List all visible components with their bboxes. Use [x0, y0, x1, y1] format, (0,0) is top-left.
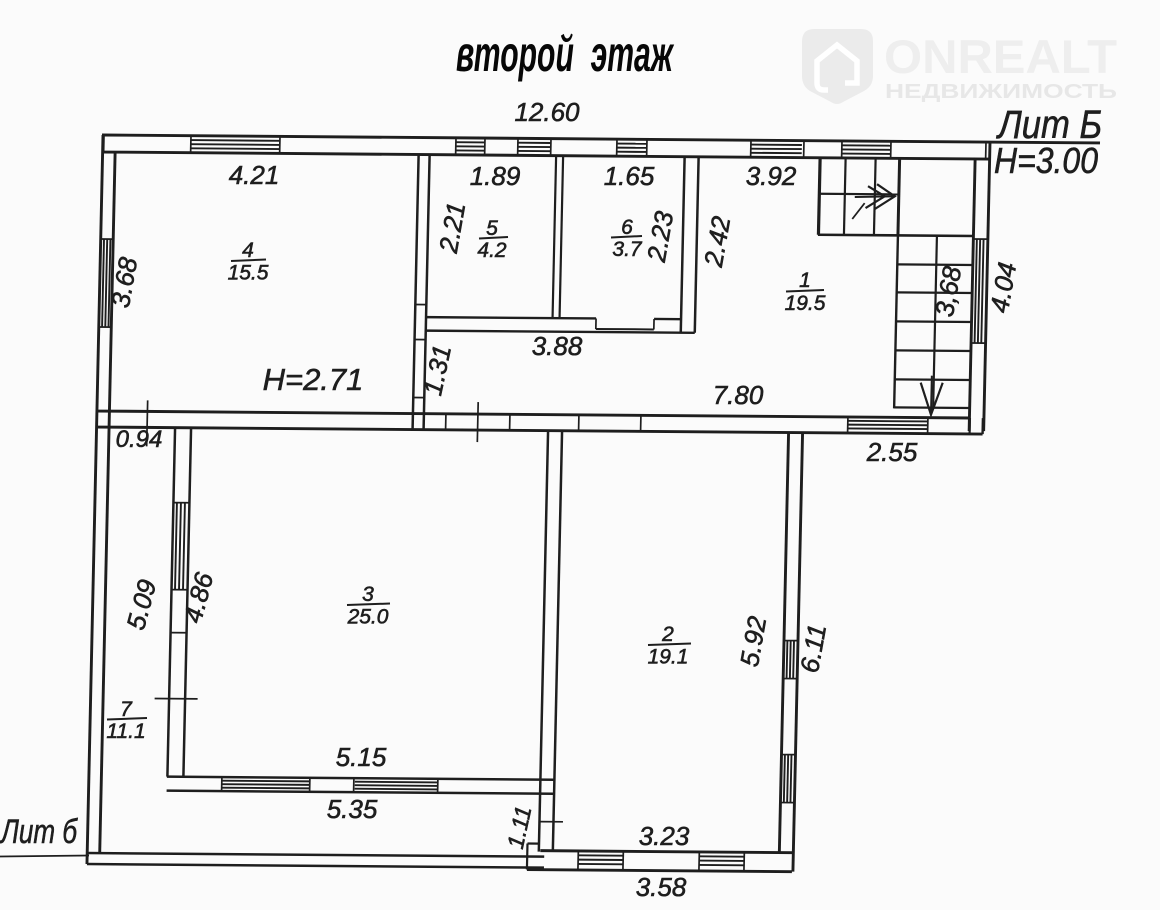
svg-text:второй этаж: второй этаж — [456, 26, 674, 82]
svg-text:3.88: 3.88 — [532, 331, 583, 361]
svg-text:3.7: 3.7 — [612, 238, 643, 261]
svg-text:3.23: 3.23 — [639, 821, 690, 851]
svg-text:5.35: 5.35 — [327, 794, 378, 824]
svg-text:25.0: 25.0 — [347, 606, 389, 629]
svg-text:7: 7 — [120, 698, 133, 721]
svg-text:H=2.71: H=2.71 — [263, 362, 364, 397]
svg-text:15.5: 15.5 — [228, 262, 269, 285]
svg-text:3.58: 3.58 — [636, 872, 687, 902]
svg-text:7.80: 7.80 — [713, 380, 764, 410]
svg-text:19.5: 19.5 — [785, 292, 826, 315]
svg-text:4.2: 4.2 — [477, 239, 507, 262]
svg-text:2: 2 — [661, 623, 674, 646]
svg-text:НЕДВИЖИМОСТЬ: НЕДВИЖИМОСТЬ — [885, 81, 1117, 103]
svg-text:12.60: 12.60 — [514, 97, 580, 127]
svg-text:19.1: 19.1 — [648, 646, 689, 669]
svg-text:H=3.00: H=3.00 — [994, 140, 1098, 181]
svg-text:ONREALT: ONREALT — [884, 30, 1117, 83]
svg-text:4.21: 4.21 — [229, 160, 280, 190]
svg-text:2.55: 2.55 — [866, 437, 918, 467]
svg-text:5.15: 5.15 — [336, 742, 387, 772]
svg-text:3: 3 — [362, 583, 374, 606]
svg-text:Лит б: Лит б — [0, 813, 78, 851]
svg-text:5: 5 — [486, 217, 498, 240]
svg-text:1.89: 1.89 — [470, 161, 521, 191]
svg-text:0.94: 0.94 — [116, 426, 163, 453]
svg-text:1.65: 1.65 — [604, 161, 655, 191]
svg-text:11.1: 11.1 — [106, 720, 145, 743]
svg-text:1: 1 — [799, 269, 811, 292]
svg-text:4: 4 — [242, 239, 254, 262]
svg-text:3.92: 3.92 — [746, 161, 797, 191]
